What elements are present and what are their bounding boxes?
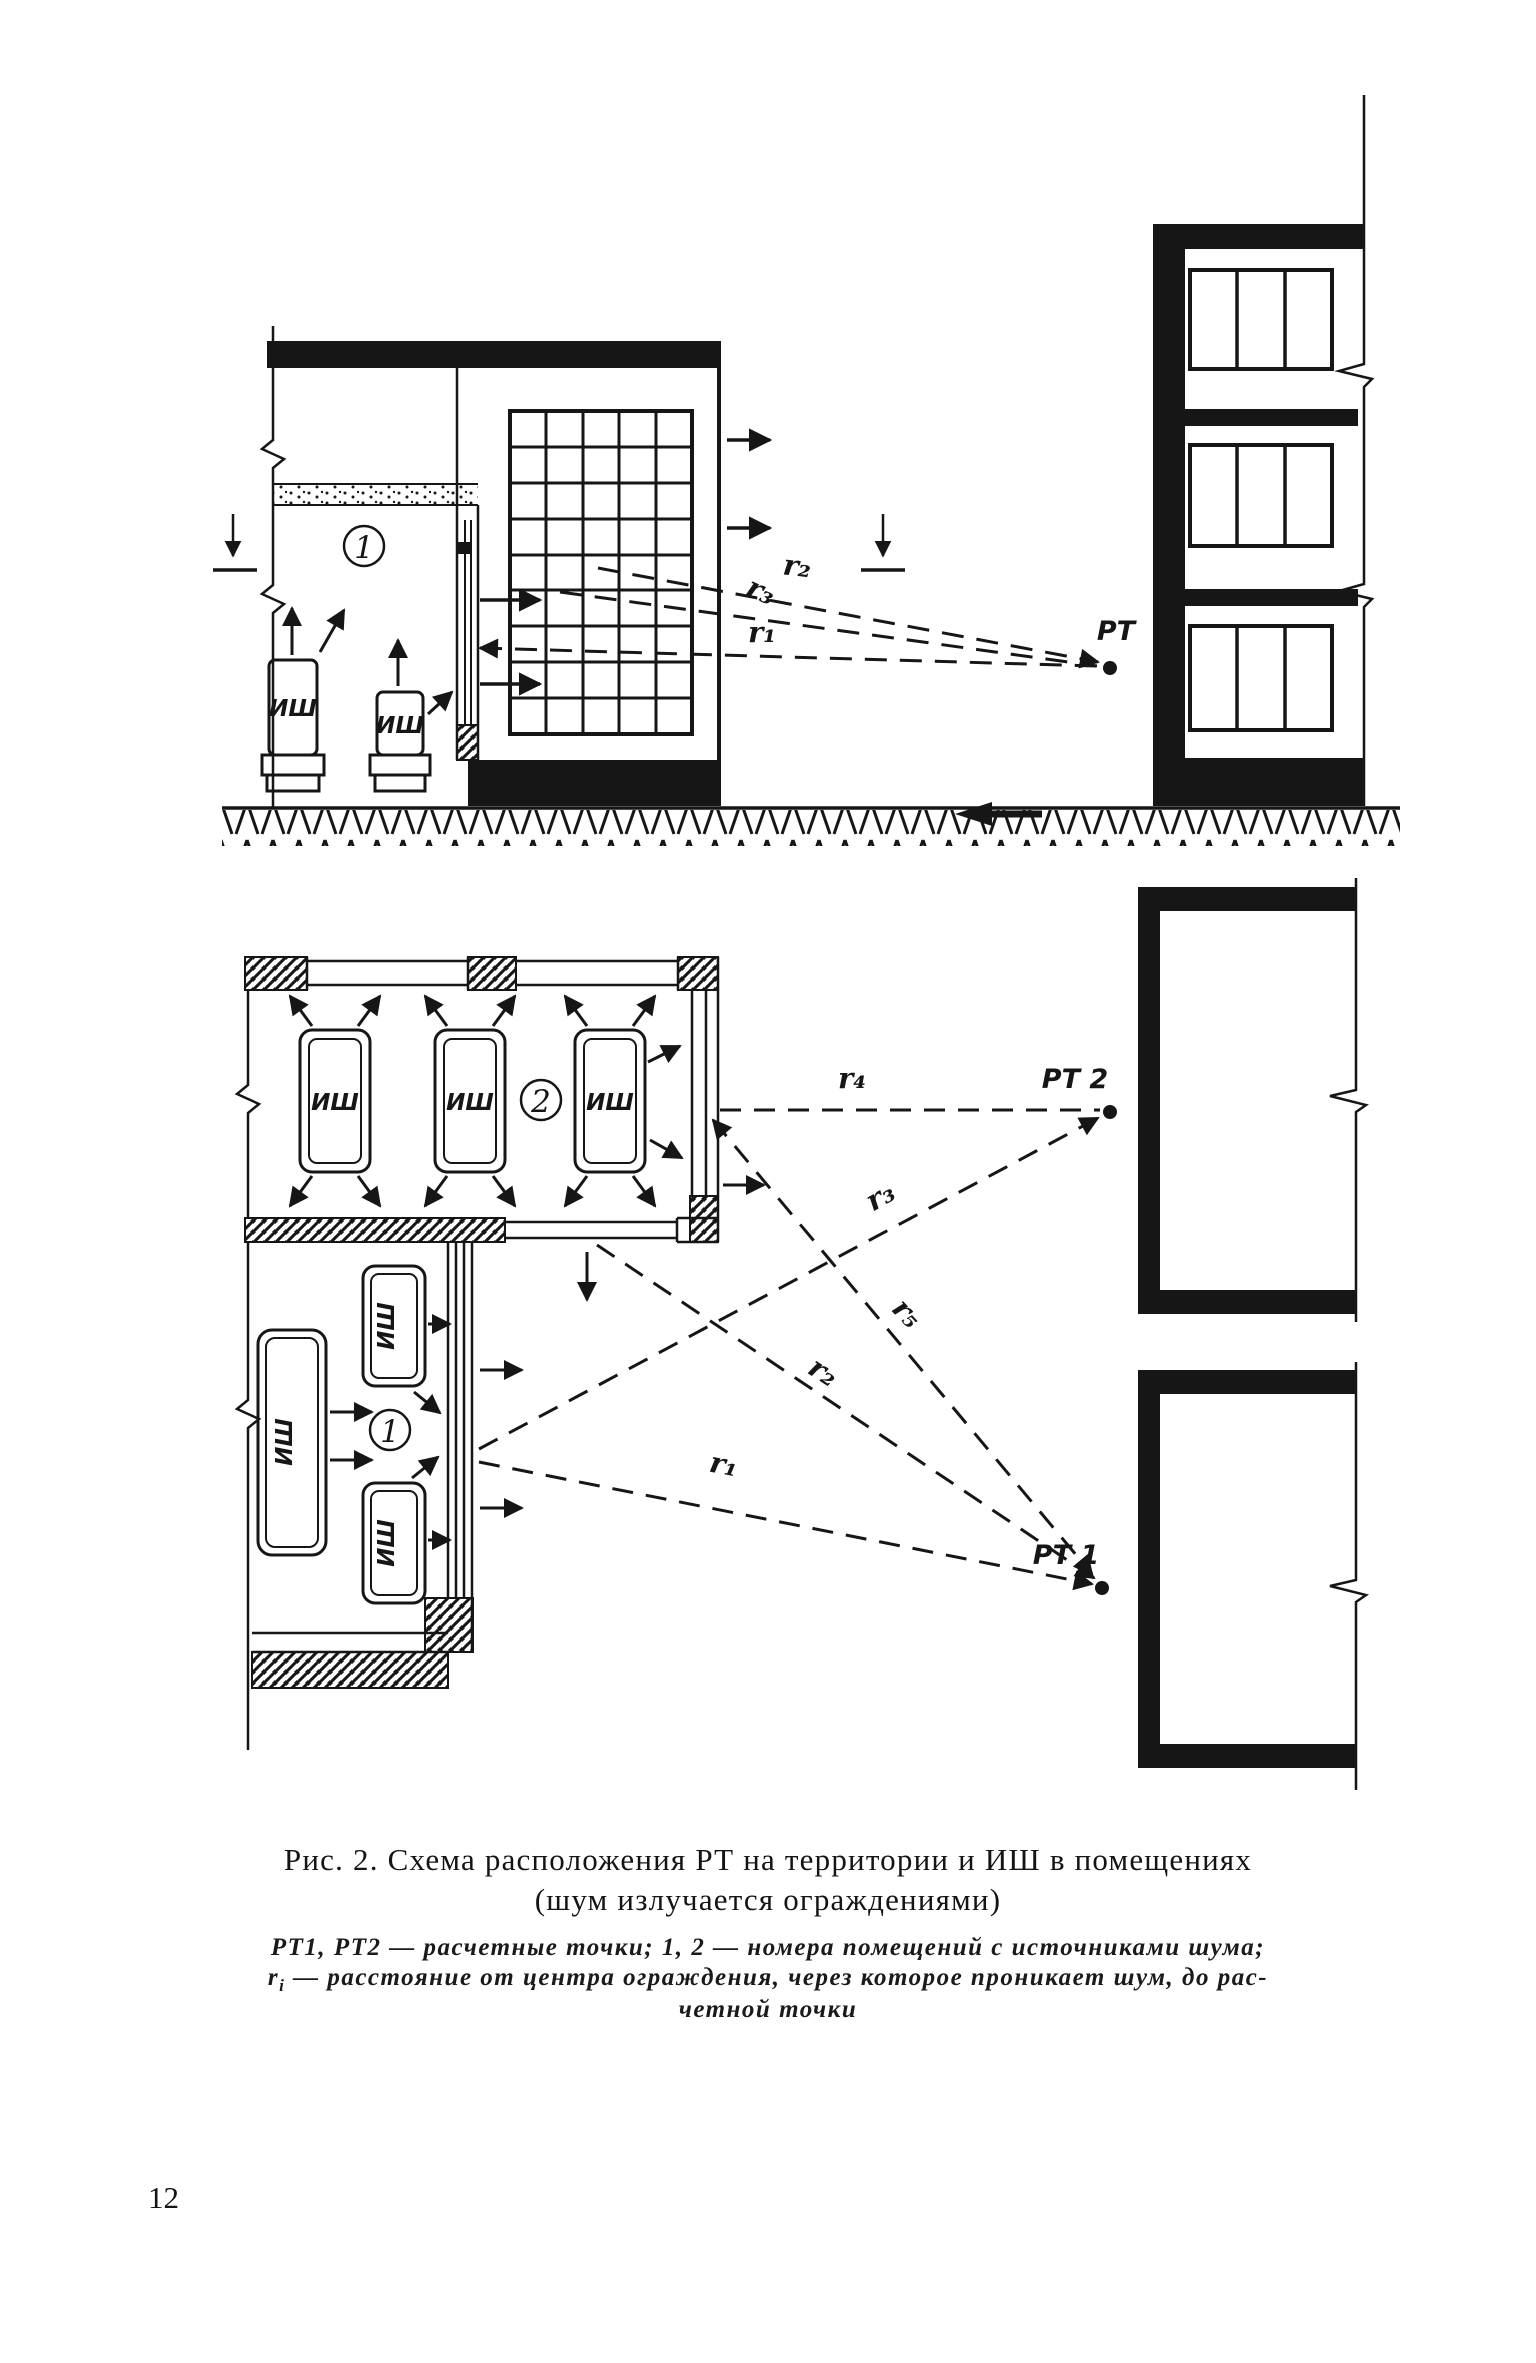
wall-hatch-block (245, 957, 307, 990)
noise-source-machine: ИШ (363, 1483, 425, 1603)
room-number-badge: 1 (370, 1410, 410, 1450)
noise-source-label: ИШ (269, 696, 317, 722)
wall-hatch-block (678, 957, 718, 990)
section-view-diagram: ИШ ИШ 1 (213, 95, 1400, 846)
noise-source-machine: ИШ (435, 1030, 505, 1172)
noise-source-machine: ИШ (370, 692, 430, 791)
distance-label-r1: r₁ (748, 615, 776, 649)
room-number: 2 (530, 1084, 551, 1120)
legend-line2-text: — расстояние от центра ограждения, через… (285, 1964, 1268, 1991)
building-wall (1138, 1290, 1356, 1314)
building-break-line (1330, 1362, 1366, 1790)
room-number: 1 (354, 530, 374, 566)
noise-source-label: ИШ (586, 1090, 634, 1116)
distance-line-r1 (479, 1462, 1092, 1584)
distance-lines: r₂ r₃ r₁ (480, 547, 1098, 666)
distance-line-r3 (479, 1118, 1098, 1449)
distance-line-r2 (598, 568, 1098, 662)
plan-room-2: ИШ ИШ ИШ 2 (237, 957, 764, 1300)
noise-source-label: ИШ (374, 1519, 400, 1567)
window-3pane (1190, 626, 1332, 730)
distance-label-r2: r₂ (781, 547, 813, 584)
room-ceiling-slab (273, 484, 478, 505)
room-number-badge: 1 (344, 526, 384, 566)
room-number-badge: 2 (521, 1080, 561, 1120)
noise-source-label: ИШ (376, 713, 424, 739)
building-wall (1138, 887, 1356, 911)
residential-building-plan-lower (1138, 1362, 1366, 1790)
distance-label-r5: r₅ (885, 1291, 929, 1335)
left-wall-line (237, 990, 259, 1218)
window-3pane (1190, 270, 1332, 369)
window-3pane (1190, 445, 1332, 546)
legend-r-symbol: r (268, 1964, 279, 1991)
base-slab (1153, 758, 1364, 806)
room-number: 1 (380, 1414, 400, 1450)
level-mark (213, 514, 257, 570)
distance-line-r3 (560, 592, 1097, 666)
plan-view-diagram: ИШ ИШ ИШ 2 (237, 878, 1366, 1790)
calc-point-label: РТ (1097, 616, 1138, 647)
calc-point-dot (1103, 1105, 1117, 1119)
distance-label-r3: r₃ (741, 570, 780, 612)
window-strip (516, 957, 678, 990)
right-wall-window (448, 1242, 472, 1652)
distance-label-r1: r₁ (707, 1445, 741, 1484)
plinth-slab (468, 760, 720, 806)
calc-point-label: РТ 1 (1033, 1540, 1099, 1571)
floor-slab (1185, 409, 1358, 426)
left-wall-line (262, 326, 284, 808)
distance-label-r4: r₄ (838, 1061, 866, 1095)
calc-point-dot (1103, 661, 1117, 675)
noise-source-machine: ИШ (258, 1330, 326, 1555)
building-wall (1138, 1370, 1356, 1394)
wall-hatch-block (425, 1598, 473, 1652)
building-break-line (1330, 878, 1366, 1322)
partition-wall (457, 341, 478, 760)
partition-hatch-block (457, 725, 478, 760)
wall-hatch-block (252, 1652, 448, 1688)
ground-hatch (222, 810, 1400, 846)
noise-source-machine: ИШ (575, 1030, 645, 1172)
noise-source-machine: ИШ (363, 1266, 425, 1386)
noise-source-label: ИШ (272, 1418, 298, 1466)
level-mark (861, 514, 905, 570)
noise-arrows-out (480, 440, 770, 684)
figure-legend-line2: ri — расстояние от центра ограждения, че… (0, 1964, 1536, 1996)
figure-title-line2: (шум излучается ограждениями) (0, 1882, 1536, 1918)
floor-slab (1185, 589, 1358, 606)
plan-room-1: ИШ ИШ ИШ 1 (237, 1242, 522, 1750)
window-sill (458, 542, 472, 554)
noise-source-label: ИШ (311, 1090, 359, 1116)
noise-arrows-out-room2 (587, 1185, 764, 1300)
residential-building-section (1153, 95, 1372, 806)
distance-line-r5 (713, 1120, 1092, 1574)
facade-wall (1153, 224, 1185, 806)
window-strip (307, 957, 468, 990)
noise-source-label: ИШ (446, 1090, 494, 1116)
page-number: 12 (148, 2180, 179, 2216)
wall-hatch-block (245, 1218, 505, 1242)
residential-building-plan-upper (1138, 878, 1366, 1322)
figure-legend-line3: четной точки (0, 1996, 1536, 2024)
document-page: ИШ ИШ 1 (0, 0, 1536, 2363)
building-wall (1138, 887, 1160, 1314)
calc-point: РТ (1097, 616, 1138, 675)
distance-lines-plan: r₄ r₃ r₅ r₂ r₁ (479, 1061, 1100, 1584)
distance-label-r3: r₃ (860, 1175, 901, 1218)
building-wall (1138, 1744, 1356, 1768)
window-strip (505, 1218, 718, 1242)
noise-source-machine: ИШ (300, 1030, 370, 1172)
roof-slab (267, 341, 720, 368)
workshop-building-section: ИШ ИШ 1 (262, 326, 770, 808)
calc-point-label: РТ 2 (1042, 1064, 1108, 1095)
calc-point-dot (1095, 1581, 1109, 1595)
calc-point-1: РТ 1 (1033, 1540, 1109, 1595)
figure-title-line1: Рис. 2. Схема расположения РТ на террито… (0, 1842, 1536, 1878)
building-wall (1138, 1370, 1160, 1768)
rear-wall-line (1339, 95, 1372, 806)
noise-source-label: ИШ (374, 1302, 400, 1350)
wall-hatch-block (468, 957, 516, 990)
figure-legend-line1: РТ1, РТ2 — расчетные точки; 1, 2 — номер… (0, 1934, 1536, 1962)
noise-source-machine: ИШ (262, 660, 324, 791)
distance-line-r2 (597, 1245, 1094, 1578)
bottom-wall-lines (252, 1633, 448, 1652)
